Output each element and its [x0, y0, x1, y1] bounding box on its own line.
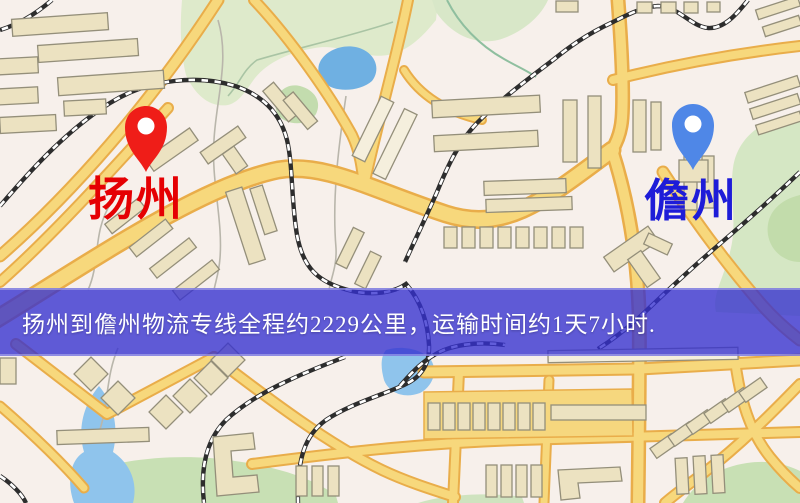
- destination-city-label: 儋州: [644, 179, 738, 224]
- origin-city-label: 扬州: [88, 177, 184, 223]
- map-image: [0, 0, 800, 503]
- route-info-banner: 扬州到儋州物流专线全程约2229公里，运输时间约1天7小时.: [0, 288, 800, 356]
- route-info-text: 扬州到儋州物流专线全程约2229公里，运输时间约1天7小时.: [0, 305, 656, 339]
- map-canvas: 扬州到儋州物流专线全程约2229公里，运输时间约1天7小时. 扬州 儋州: [0, 0, 800, 503]
